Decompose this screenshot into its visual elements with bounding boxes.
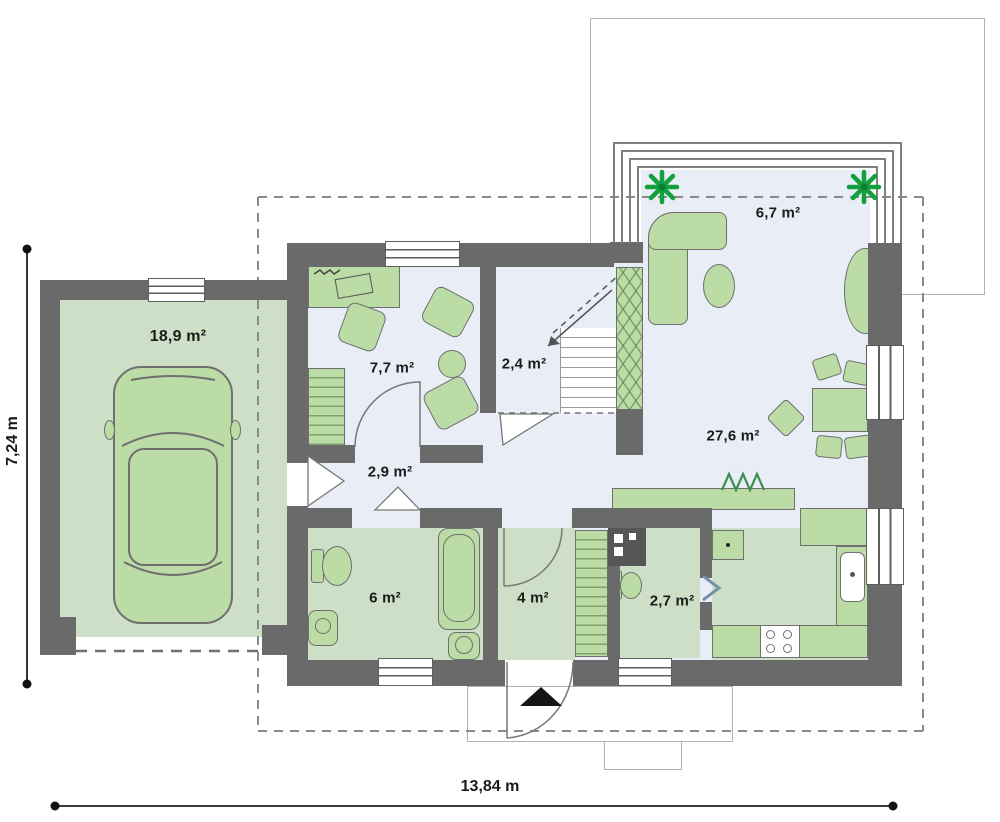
roof-outline: [258, 197, 923, 731]
room-label-stair-hall: 2,4 m²: [502, 356, 547, 373]
wc-opening-chevron: [703, 576, 719, 600]
room-label-office: 7,7 m²: [370, 360, 415, 377]
room-label-entry: 4 m²: [517, 590, 549, 607]
stair-hall-door-wedge: [500, 414, 553, 445]
office-door-arc: [355, 382, 420, 447]
room-label-garage: 18,9 m²: [150, 328, 207, 346]
car-detail-lines: [122, 376, 224, 575]
tree-icon: [861, 184, 868, 191]
garage-door-wedge: [308, 456, 344, 506]
dimension-dot: [23, 680, 32, 689]
room-label-bathroom: 6 m²: [369, 590, 401, 607]
room-label-wc: 2,7 m²: [650, 593, 695, 610]
entry-room-door-arc: [504, 528, 562, 586]
stair-cut-line: [553, 275, 619, 333]
dimension-dot: [51, 802, 60, 811]
desk-accessory: [314, 270, 340, 274]
room-label-living-room: 27,6 m²: [706, 428, 759, 445]
floor-plan: 18,9 m² 7,7 m² 2,4 m² 6,7 m² 27,6 m² 2,9…: [0, 0, 1000, 822]
bathroom-door-wedge: [375, 487, 420, 510]
dimension-label-depth: 7,24 m: [4, 401, 22, 481]
plant-icon: [722, 474, 764, 490]
dimension-dot: [23, 245, 32, 254]
stair-rail-line: [548, 290, 612, 346]
linework-overlay: [0, 0, 1000, 822]
entrance-arrow: [520, 687, 562, 706]
dimension-dot: [889, 802, 898, 811]
dimension-label-width: 13,84 m: [430, 778, 550, 796]
room-label-hallway: 2,9 m²: [368, 464, 413, 481]
tree-icon: [659, 184, 666, 191]
room-label-terrace: 6,7 m²: [756, 205, 801, 222]
